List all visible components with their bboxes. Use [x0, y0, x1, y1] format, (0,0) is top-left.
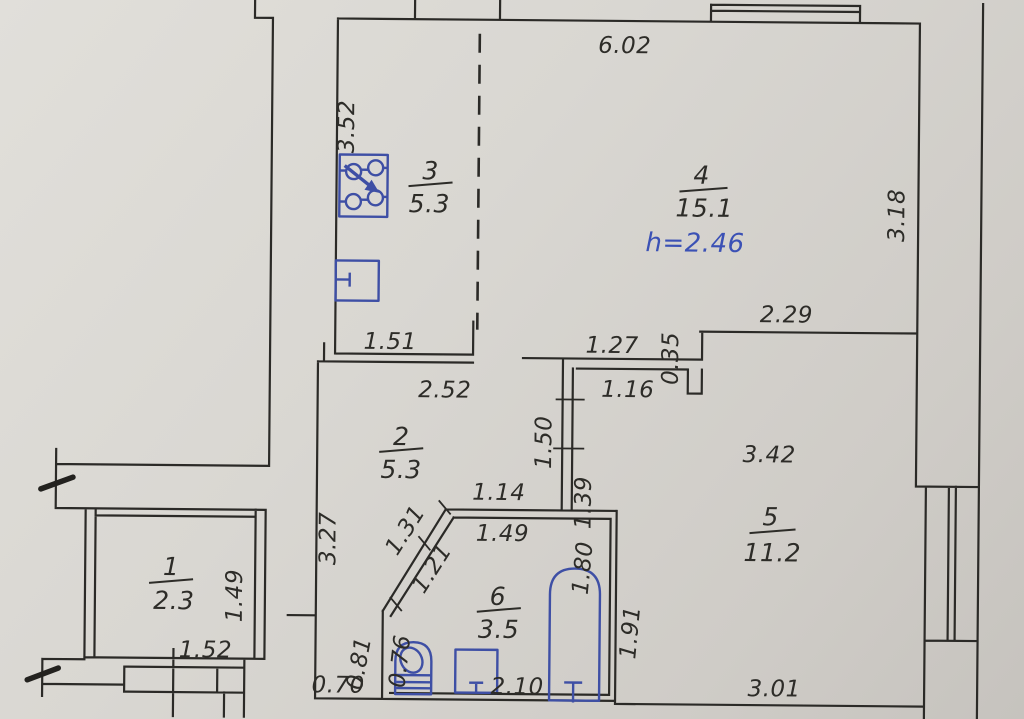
- dim-hall-wall-lower: 1.39: [571, 476, 597, 529]
- dim-diag-inner: 1.21: [407, 539, 458, 598]
- svg-text:15.1: 15.1: [675, 193, 733, 223]
- dim-room2-bottom: 1.14: [472, 480, 525, 506]
- dim-bath-bottom: 2.10: [490, 674, 543, 700]
- svg-text:3.5: 3.5: [478, 615, 520, 644]
- svg-text:6: 6: [490, 582, 507, 611]
- room-label-1: 1 2.3: [149, 552, 195, 615]
- room-label-4: 4 15.1: [675, 160, 733, 223]
- dim-room4-right: 3.18: [884, 189, 910, 242]
- dim-room1-right: 1.49: [222, 569, 248, 622]
- svg-text:3: 3: [422, 156, 439, 185]
- dim-room5-width: 3.42: [742, 442, 795, 468]
- room-label-2: 2 5.3: [379, 422, 424, 484]
- dim-top-width: 6.02: [598, 33, 651, 59]
- dimension-labels: 6.02 3.52 3.18 2.29 0.35 1.27 1.16 1.50 …: [178, 29, 911, 703]
- stove-icon: [339, 154, 388, 216]
- svg-text:5.3: 5.3: [409, 189, 451, 218]
- dim-kitchen-bottom: 1.51: [363, 329, 416, 355]
- dim-bath-top: 1.49: [476, 521, 529, 547]
- svg-text:4: 4: [693, 161, 710, 190]
- svg-text:2: 2: [393, 422, 410, 451]
- floor-plan-svg: 1 2.3 2 5.3 3 5.3 4 15.1 5: [0, 0, 1024, 719]
- room-label-5: 5 11.2: [743, 502, 801, 568]
- dim-bath-left-inner: 0.76: [384, 633, 416, 689]
- room-label-6: 6 3.5: [477, 582, 522, 644]
- svg-text:5: 5: [762, 502, 779, 531]
- floor-plan-photo: 1 2.3 2 5.3 3 5.3 4 15.1 5: [0, 0, 1024, 719]
- dim-hall-inner: 1.16: [601, 377, 654, 403]
- dim-hall-top: 1.27: [585, 333, 638, 359]
- dim-diag-outer: 1.31: [380, 501, 431, 560]
- dashed-partition: [477, 34, 480, 330]
- dim-kitchen-left: 3.52: [334, 100, 360, 153]
- svg-text:5.3: 5.3: [380, 455, 422, 484]
- dim-room5-bottom: 3.01: [747, 676, 800, 702]
- svg-text:1: 1: [163, 552, 180, 581]
- dim-room4-bottom: 2.29: [760, 302, 813, 328]
- kitchen-sink-icon: [336, 260, 379, 300]
- ceiling-height-note: h=2.46: [645, 228, 744, 259]
- room-label-3: 3 5.3: [408, 156, 453, 218]
- dim-porch-width: 1.52: [179, 637, 232, 663]
- dim-vestibule-bottom: 0.70: [311, 672, 364, 698]
- svg-text:11.2: 11.2: [743, 538, 801, 568]
- dim-room2-top: 2.52: [418, 377, 471, 403]
- dim-hall-wall-upper: 1.50: [531, 416, 557, 469]
- dim-step: 0.35: [658, 332, 684, 385]
- svg-text:2.3: 2.3: [153, 586, 195, 615]
- dim-room5-left-lower: 1.91: [615, 605, 646, 660]
- dim-bath-right-upper: 1.80: [568, 540, 599, 595]
- dim-room2-left: 3.27: [315, 512, 341, 565]
